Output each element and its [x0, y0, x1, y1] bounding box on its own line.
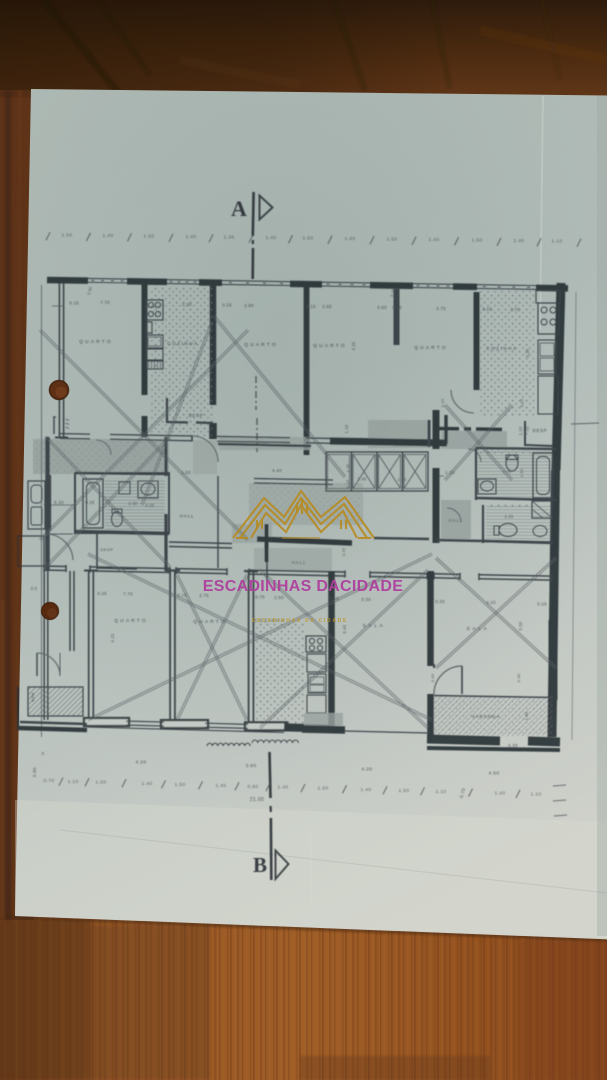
svg-text:4.20: 4.20	[486, 600, 496, 605]
svg-text:HALL: HALL	[449, 518, 464, 523]
svg-text:4.20: 4.20	[136, 760, 147, 766]
svg-text:0.15: 0.15	[519, 398, 524, 407]
svg-text:2.80: 2.80	[244, 303, 254, 308]
svg-text:2.30: 2.30	[182, 302, 192, 307]
svg-text:0.15: 0.15	[482, 307, 492, 312]
svg-text:0.25: 0.25	[86, 500, 95, 505]
svg-text:1.40: 1.40	[142, 781, 153, 787]
svg-text:1.40: 1.40	[398, 477, 407, 482]
svg-text:COZINHA: COZINHA	[486, 346, 517, 351]
svg-text:1.50: 1.50	[144, 234, 155, 240]
svg-text:2.25: 2.25	[505, 514, 514, 519]
svg-text:1.50: 1.50	[519, 468, 524, 477]
svg-text:1.40: 1.40	[103, 233, 114, 239]
svg-text:1.40: 1.40	[358, 477, 367, 482]
svg-text:0.25: 0.25	[435, 599, 445, 604]
svg-text:1.40: 1.40	[278, 785, 289, 791]
svg-text:0.25: 0.25	[97, 591, 107, 596]
svg-text:SALA: SALA	[363, 623, 386, 629]
svg-text:QUARTO: QUARTO	[414, 345, 448, 351]
svg-text:SALA: SALA	[467, 626, 490, 632]
svg-text:7.70: 7.70	[123, 592, 133, 597]
svg-text:HALL: HALL	[292, 560, 307, 565]
svg-text:4.20: 4.20	[362, 767, 373, 773]
svg-text:7.70: 7.70	[100, 300, 110, 305]
svg-text:0.30: 0.30	[516, 673, 521, 682]
svg-text:0.25: 0.25	[345, 479, 350, 488]
svg-text:0.80: 0.80	[32, 767, 37, 777]
svg-text:ESCADINHAS DA CIDADE: ESCADINHAS DA CIDADE	[252, 618, 348, 624]
svg-text:4.25: 4.25	[351, 341, 356, 350]
svg-text:6.40: 6.40	[342, 624, 347, 633]
svg-text:2.75: 2.75	[436, 306, 446, 311]
svg-text:2.30: 2.30	[129, 501, 138, 506]
svg-text:1.40: 1.40	[186, 234, 197, 240]
svg-text:4.15: 4.15	[110, 633, 115, 642]
svg-text:1.10: 1.10	[552, 238, 563, 244]
svg-text:4.25: 4.25	[525, 348, 530, 357]
svg-text:QUARTO: QUARTO	[313, 343, 347, 349]
svg-text:BOW: BOW	[31, 692, 35, 702]
svg-text:QUARTO: QUARTO	[79, 339, 113, 345]
svg-text:0.70: 0.70	[44, 778, 55, 784]
svg-text:1.50: 1.50	[318, 786, 329, 792]
svg-text:0.25: 0.25	[146, 503, 155, 508]
svg-text:HALL: HALL	[180, 514, 195, 519]
svg-text:QUARTO: QUARTO	[114, 618, 148, 624]
svg-text:0.35: 0.35	[508, 743, 518, 748]
svg-text:1.40: 1.40	[514, 238, 525, 244]
svg-text:0.15: 0.15	[177, 593, 187, 598]
svg-text:1.40: 1.40	[361, 787, 372, 793]
svg-text:0.15: 0.15	[329, 596, 339, 601]
svg-text:1.40: 1.40	[266, 235, 277, 241]
svg-text:5.30: 5.30	[54, 500, 64, 505]
svg-text:1.10: 1.10	[531, 791, 542, 797]
svg-text:0.15: 0.15	[306, 304, 316, 309]
svg-text:0.75: 0.75	[255, 595, 265, 600]
svg-text:1.36: 1.36	[224, 235, 235, 241]
svg-text:1.40: 1.40	[216, 783, 227, 789]
svg-text:DESP: DESP	[189, 413, 204, 418]
svg-text:B: B	[253, 853, 267, 877]
svg-text:COZINHA: COZINHA	[167, 341, 198, 346]
svg-text:0.30: 0.30	[430, 673, 435, 682]
svg-text:1.50: 1.50	[399, 788, 410, 794]
svg-text:1.10: 1.10	[436, 789, 447, 795]
svg-text:DESP: DESP	[100, 547, 113, 552]
svg-text:3.30: 3.30	[361, 597, 371, 602]
svg-text:0.25: 0.25	[341, 547, 346, 556]
svg-text:2.65: 2.65	[322, 304, 332, 309]
svg-text:1.40: 1.40	[345, 236, 356, 242]
svg-text:1.50: 1.50	[96, 780, 107, 786]
svg-text:0.15: 0.15	[392, 305, 402, 310]
svg-text:1.50: 1.50	[175, 782, 186, 788]
svg-text:0: 0	[42, 751, 45, 756]
svg-text:1.50: 1.50	[387, 236, 398, 242]
svg-text:1.50: 1.50	[303, 235, 314, 241]
svg-text:A: A	[231, 196, 247, 221]
svg-text:1.45: 1.45	[345, 463, 350, 472]
svg-text:2.70: 2.70	[510, 307, 520, 312]
svg-text:VARANDA: VARANDA	[472, 714, 501, 719]
svg-text:1.10: 1.10	[68, 779, 79, 785]
svg-text:ESCADINHAS DACIDADE: ESCADINHAS DACIDADE	[203, 578, 403, 595]
svg-text:2.50: 2.50	[274, 595, 284, 600]
svg-text:21.00: 21.00	[250, 797, 264, 803]
svg-text:QUARTO: QUARTO	[244, 342, 278, 348]
svg-text:5.00: 5.00	[518, 621, 523, 630]
svg-text:DESP: DESP	[533, 428, 548, 433]
svg-text:1.10: 1.10	[344, 424, 349, 433]
svg-text:1.40: 1.40	[429, 237, 440, 243]
svg-text:0.80: 0.80	[248, 784, 259, 790]
svg-text:1.50: 1.50	[472, 238, 483, 244]
svg-text:1.60: 1.60	[524, 711, 529, 720]
svg-text:0.0: 0.0	[31, 586, 38, 591]
svg-text:1.40: 1.40	[495, 790, 506, 796]
svg-text:0.25: 0.25	[222, 303, 232, 308]
svg-text:0.15: 0.15	[69, 301, 79, 306]
svg-text:4.50: 4.50	[489, 771, 500, 777]
svg-text:3.60: 3.60	[246, 763, 257, 769]
svg-text:4.40: 4.40	[272, 468, 282, 473]
svg-text:0.60: 0.60	[377, 305, 387, 310]
svg-text:QUARTO: QUARTO	[193, 619, 227, 625]
svg-text:0.25: 0.25	[537, 602, 547, 607]
svg-text:1.50: 1.50	[62, 233, 73, 239]
